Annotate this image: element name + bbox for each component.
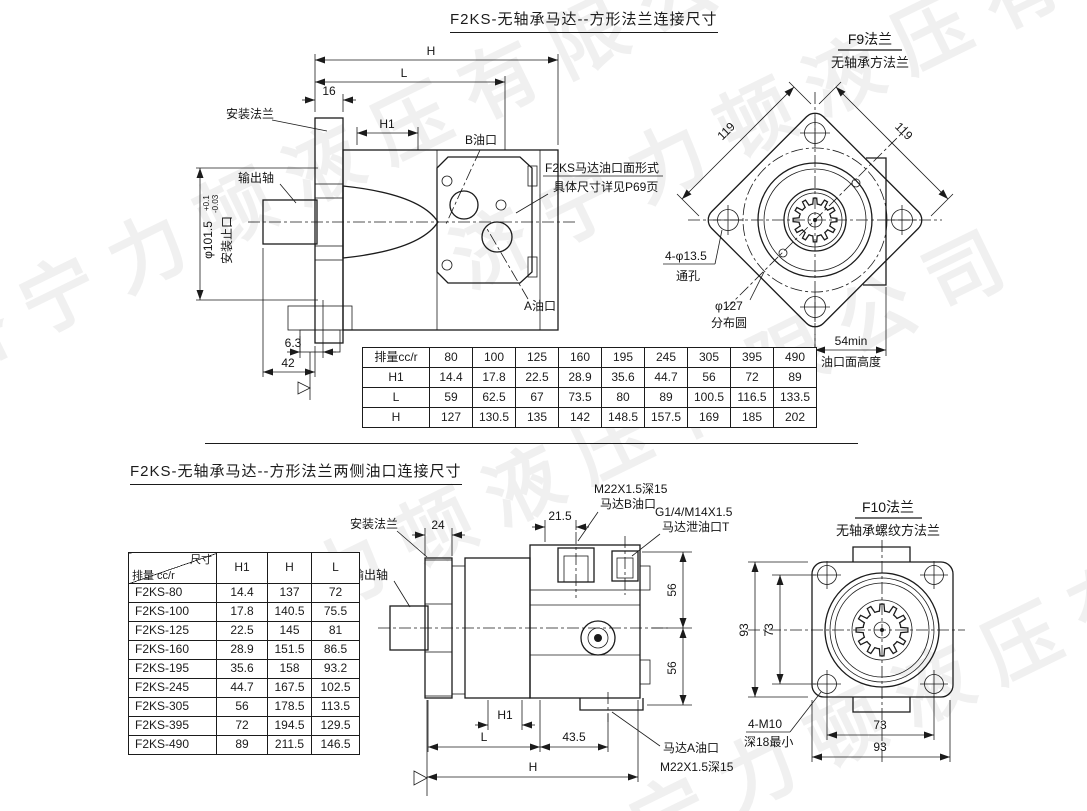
- table-row: F2KS-395 72 194.5 129.5: [129, 717, 360, 736]
- table-cell: F2KS-245: [129, 679, 217, 698]
- table-cell: F2KS-80: [129, 584, 217, 603]
- table-cell: 127: [430, 408, 473, 428]
- label-drain-thread: G1/4/M14X1.5: [655, 505, 733, 519]
- column-header: H: [268, 553, 312, 584]
- table-cell: 194.5: [268, 717, 312, 736]
- dim-l: L: [401, 66, 408, 80]
- model-dimension-table: 尺寸 排量 cc/r H1 H L F2KS-80 14.4 137 72 F2…: [128, 552, 360, 755]
- table-cell: 44.7: [645, 368, 688, 388]
- drawing-sheet: 济宁力顿液压有限公司 济宁力顿液压有限公司 济宁力顿液压有限公司 济宁力顿液压有…: [0, 0, 1087, 811]
- table-cell: 72: [312, 584, 360, 603]
- f10-subtitle: 无轴承螺纹方法兰: [836, 523, 940, 538]
- table-cell: 160: [559, 348, 602, 368]
- table-cell: 72: [217, 717, 268, 736]
- table-cell: 125: [516, 348, 559, 368]
- table-cell: 169: [688, 408, 731, 428]
- dim-l-bottom: L: [481, 730, 488, 744]
- table-cell: 56: [217, 698, 268, 717]
- table-row: F2KS-490 89 211.5 146.5: [129, 736, 360, 755]
- table-cell: 202: [774, 408, 817, 428]
- dim-pilot-tol-lower: -0.03: [211, 194, 220, 213]
- header-size: 尺寸: [190, 554, 212, 566]
- dim-42: 42: [281, 356, 295, 370]
- table-cell: 490: [774, 348, 817, 368]
- table-cell: 75.5: [312, 603, 360, 622]
- note-port-face-line1: F2KS马达油口面形式: [545, 161, 659, 175]
- f9-flange-view: 119 119 54min 油口面高度 4-φ13.5 通孔 φ127 分布圆 …: [663, 31, 953, 369]
- table-cell: 17.8: [473, 368, 516, 388]
- table-cell: 89: [645, 388, 688, 408]
- table-cell: 167.5: [268, 679, 312, 698]
- table-row: H1 14.4 17.8 22.5 28.9 35.6 44.7 56 72 8…: [363, 368, 817, 388]
- dim-h1: H1: [379, 117, 395, 131]
- dim-119-left: 119: [714, 119, 738, 143]
- table-cell: 102.5: [312, 679, 360, 698]
- table-cell: 28.9: [217, 641, 268, 660]
- table-cell: 148.5: [602, 408, 645, 428]
- table-cell: F2KS-160: [129, 641, 217, 660]
- dim-56-top: 56: [665, 583, 679, 597]
- table-cell: 62.5: [473, 388, 516, 408]
- f9-title: F9法兰: [848, 31, 892, 47]
- table-cell: 28.9: [559, 368, 602, 388]
- label-mounting-flange: 安装法兰: [226, 106, 274, 121]
- dim-73-bottom: 73: [873, 718, 887, 732]
- dim-93-left: 93: [737, 623, 751, 637]
- table-cell: 157.5: [645, 408, 688, 428]
- dim-24: 24: [431, 518, 445, 532]
- datum-triangle: [414, 771, 427, 785]
- table-cell: 245: [645, 348, 688, 368]
- table-row: L 59 62.5 67 73.5 80 89 100.5 116.5 133.…: [363, 388, 817, 408]
- table-cell: 80: [602, 388, 645, 408]
- table-cell: 142: [559, 408, 602, 428]
- dim-54min: 54min: [835, 334, 868, 348]
- table-cell: 67: [516, 388, 559, 408]
- table-cell: 305: [688, 348, 731, 368]
- table-cell: F2KS-305: [129, 698, 217, 717]
- label-port-a-name: 马达A油口: [663, 741, 719, 755]
- table-cell: F2KS-395: [129, 717, 217, 736]
- label-mounting-flange-2: 安装法兰: [350, 516, 398, 531]
- table-row: F2KS-245 44.7 167.5 102.5: [129, 679, 360, 698]
- f10-title: F10法兰: [862, 499, 914, 515]
- table-cell: 14.4: [430, 368, 473, 388]
- label-f9-bcd-line1: φ127: [715, 299, 743, 313]
- table-cell: F2KS-195: [129, 660, 217, 679]
- label-port-a: A油口: [524, 299, 556, 313]
- table-row: F2KS-160 28.9 151.5 86.5: [129, 641, 360, 660]
- table-cell: 395: [731, 348, 774, 368]
- label-f9-holes-line1: 4-φ13.5: [665, 249, 707, 263]
- motor-side-view-bottom-dims: 24 21.5 56 56 H1 L: [350, 482, 734, 796]
- dim-6-3: 6.3: [285, 336, 302, 350]
- table-cell: F2KS-490: [129, 736, 217, 755]
- table-cell: 89: [217, 736, 268, 755]
- table-cell: 135: [516, 408, 559, 428]
- label-port-b: B油口: [465, 133, 497, 147]
- table-header-row: 尺寸 排量 cc/r H1 H L: [129, 553, 360, 584]
- table-row: F2KS-80 14.4 137 72: [129, 584, 360, 603]
- table-cell: 140.5: [268, 603, 312, 622]
- dim-pilot-diameter: φ101.5: [201, 221, 215, 259]
- label-f9-holes-line2: 通孔: [676, 269, 700, 283]
- table-cell: H1: [363, 368, 430, 388]
- table-cell: 151.5: [268, 641, 312, 660]
- dim-16: 16: [322, 84, 336, 98]
- table-cell: 100.5: [688, 388, 731, 408]
- table-cell: 35.6: [217, 660, 268, 679]
- table-cell: 73.5: [559, 388, 602, 408]
- table-cell: F2KS-100: [129, 603, 217, 622]
- table-cell: 145: [268, 622, 312, 641]
- column-header: H1: [217, 553, 268, 584]
- dim-pilot-tol-upper: +0.1: [202, 195, 211, 211]
- table-cell: 80: [430, 348, 473, 368]
- dim-h: H: [427, 44, 436, 58]
- table-cell: 178.5: [268, 698, 312, 717]
- label-f10-holes-line1: 4-M10: [748, 717, 782, 731]
- table-row: H 127 130.5 135 142 148.5 157.5 169 185 …: [363, 408, 817, 428]
- dim-56-bottom: 56: [665, 661, 679, 675]
- table-row: 排量cc/r 80 100 125 160 195 245 305 395 49…: [363, 348, 817, 368]
- label-port-b-name: 马达B油口: [600, 497, 656, 511]
- table-row: F2KS-100 17.8 140.5 75.5: [129, 603, 360, 622]
- table-cell: 211.5: [268, 736, 312, 755]
- table-cell: 14.4: [217, 584, 268, 603]
- table-cell: 158: [268, 660, 312, 679]
- table-cell: 72: [731, 368, 774, 388]
- table-cell: 195: [602, 348, 645, 368]
- table-cell: 排量cc/r: [363, 348, 430, 368]
- table-cell: 116.5: [731, 388, 774, 408]
- dim-73-left: 73: [762, 623, 776, 637]
- f9-subtitle: 无轴承方法兰: [831, 55, 909, 70]
- note-port-face-line2: 具体尺寸详见P69页: [553, 179, 658, 194]
- table-cell: 22.5: [516, 368, 559, 388]
- dim-21-5: 21.5: [548, 509, 572, 523]
- table-cell: 17.8: [217, 603, 268, 622]
- table-cell: L: [363, 388, 430, 408]
- table-cell: 113.5: [312, 698, 360, 717]
- table-cell: 129.5: [312, 717, 360, 736]
- table-cell: 81: [312, 622, 360, 641]
- table-row: F2KS-195 35.6 158 93.2: [129, 660, 360, 679]
- table-row: F2KS-125 22.5 145 81: [129, 622, 360, 641]
- dim-h-bottom: H: [529, 760, 538, 774]
- table-cell: H: [363, 408, 430, 428]
- square-flange-dimension-table: 排量cc/r 80 100 125 160 195 245 305 395 49…: [362, 347, 817, 428]
- label-f10-holes-line2: 深18最小: [744, 735, 793, 749]
- table-cell: 22.5: [217, 622, 268, 641]
- table-cell: 86.5: [312, 641, 360, 660]
- table-row: F2KS-305 56 178.5 113.5: [129, 698, 360, 717]
- table-cell: 35.6: [602, 368, 645, 388]
- table-cell: 100: [473, 348, 516, 368]
- section1-title: F2KS-无轴承马达--方形法兰连接尺寸: [450, 8, 718, 33]
- table-cell: F2KS-125: [129, 622, 217, 641]
- table-cell: 89: [774, 368, 817, 388]
- table-cell: 137: [268, 584, 312, 603]
- section-divider: [205, 443, 858, 444]
- table-cell: 185: [731, 408, 774, 428]
- label-drain-name: 马达泄油口T: [662, 520, 730, 534]
- table-cell: 56: [688, 368, 731, 388]
- label-port-face-height: 油口面高度: [821, 354, 881, 369]
- table-cell: 133.5: [774, 388, 817, 408]
- dim-93-bottom: 93: [873, 740, 887, 754]
- diagonal-header-cell: 尺寸 排量 cc/r: [129, 553, 217, 584]
- motor-side-view-bottom: [378, 532, 668, 722]
- label-output-shaft: 输出轴: [238, 170, 274, 185]
- label-port-a-thread: M22X1.5深15: [660, 760, 734, 774]
- label-pilot-spigot: 安装止口: [219, 216, 234, 264]
- motor-side-view-top: [248, 118, 575, 352]
- table-cell: 146.5: [312, 736, 360, 755]
- table-cell: 130.5: [473, 408, 516, 428]
- dim-43-5: 43.5: [562, 730, 586, 744]
- table-cell: 44.7: [217, 679, 268, 698]
- dim-h1-bottom: H1: [497, 708, 513, 722]
- label-port-b-thread: M22X1.5深15: [594, 482, 668, 496]
- datum-triangle: [298, 382, 310, 394]
- label-f9-bcd-line2: 分布圆: [711, 316, 747, 330]
- f10-flange-view: 93 73 73 93 4-M10 深18最小 F10法兰 无轴承螺纹方法兰: [737, 499, 965, 764]
- header-displacement: 排量 cc/r: [132, 570, 175, 582]
- column-header: L: [312, 553, 360, 584]
- table-cell: 93.2: [312, 660, 360, 679]
- table-cell: 59: [430, 388, 473, 408]
- section2-title: F2KS-无轴承马达--方形法兰两侧油口连接尺寸: [130, 460, 462, 485]
